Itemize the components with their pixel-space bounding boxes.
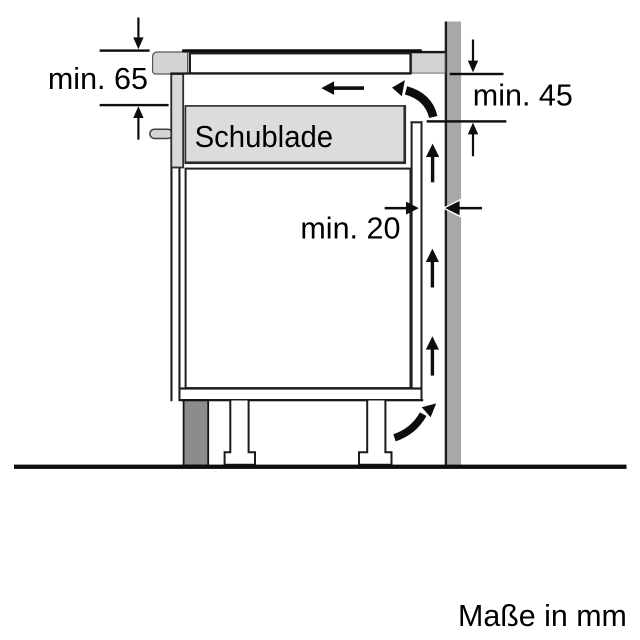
svg-text:min. 20: min. 20: [300, 212, 400, 246]
svg-text:Maße in mm: Maße in mm: [458, 599, 627, 633]
svg-text:min. 65: min. 65: [48, 62, 148, 96]
svg-text:Schublade: Schublade: [195, 119, 334, 154]
svg-text:min. 45: min. 45: [473, 79, 573, 113]
